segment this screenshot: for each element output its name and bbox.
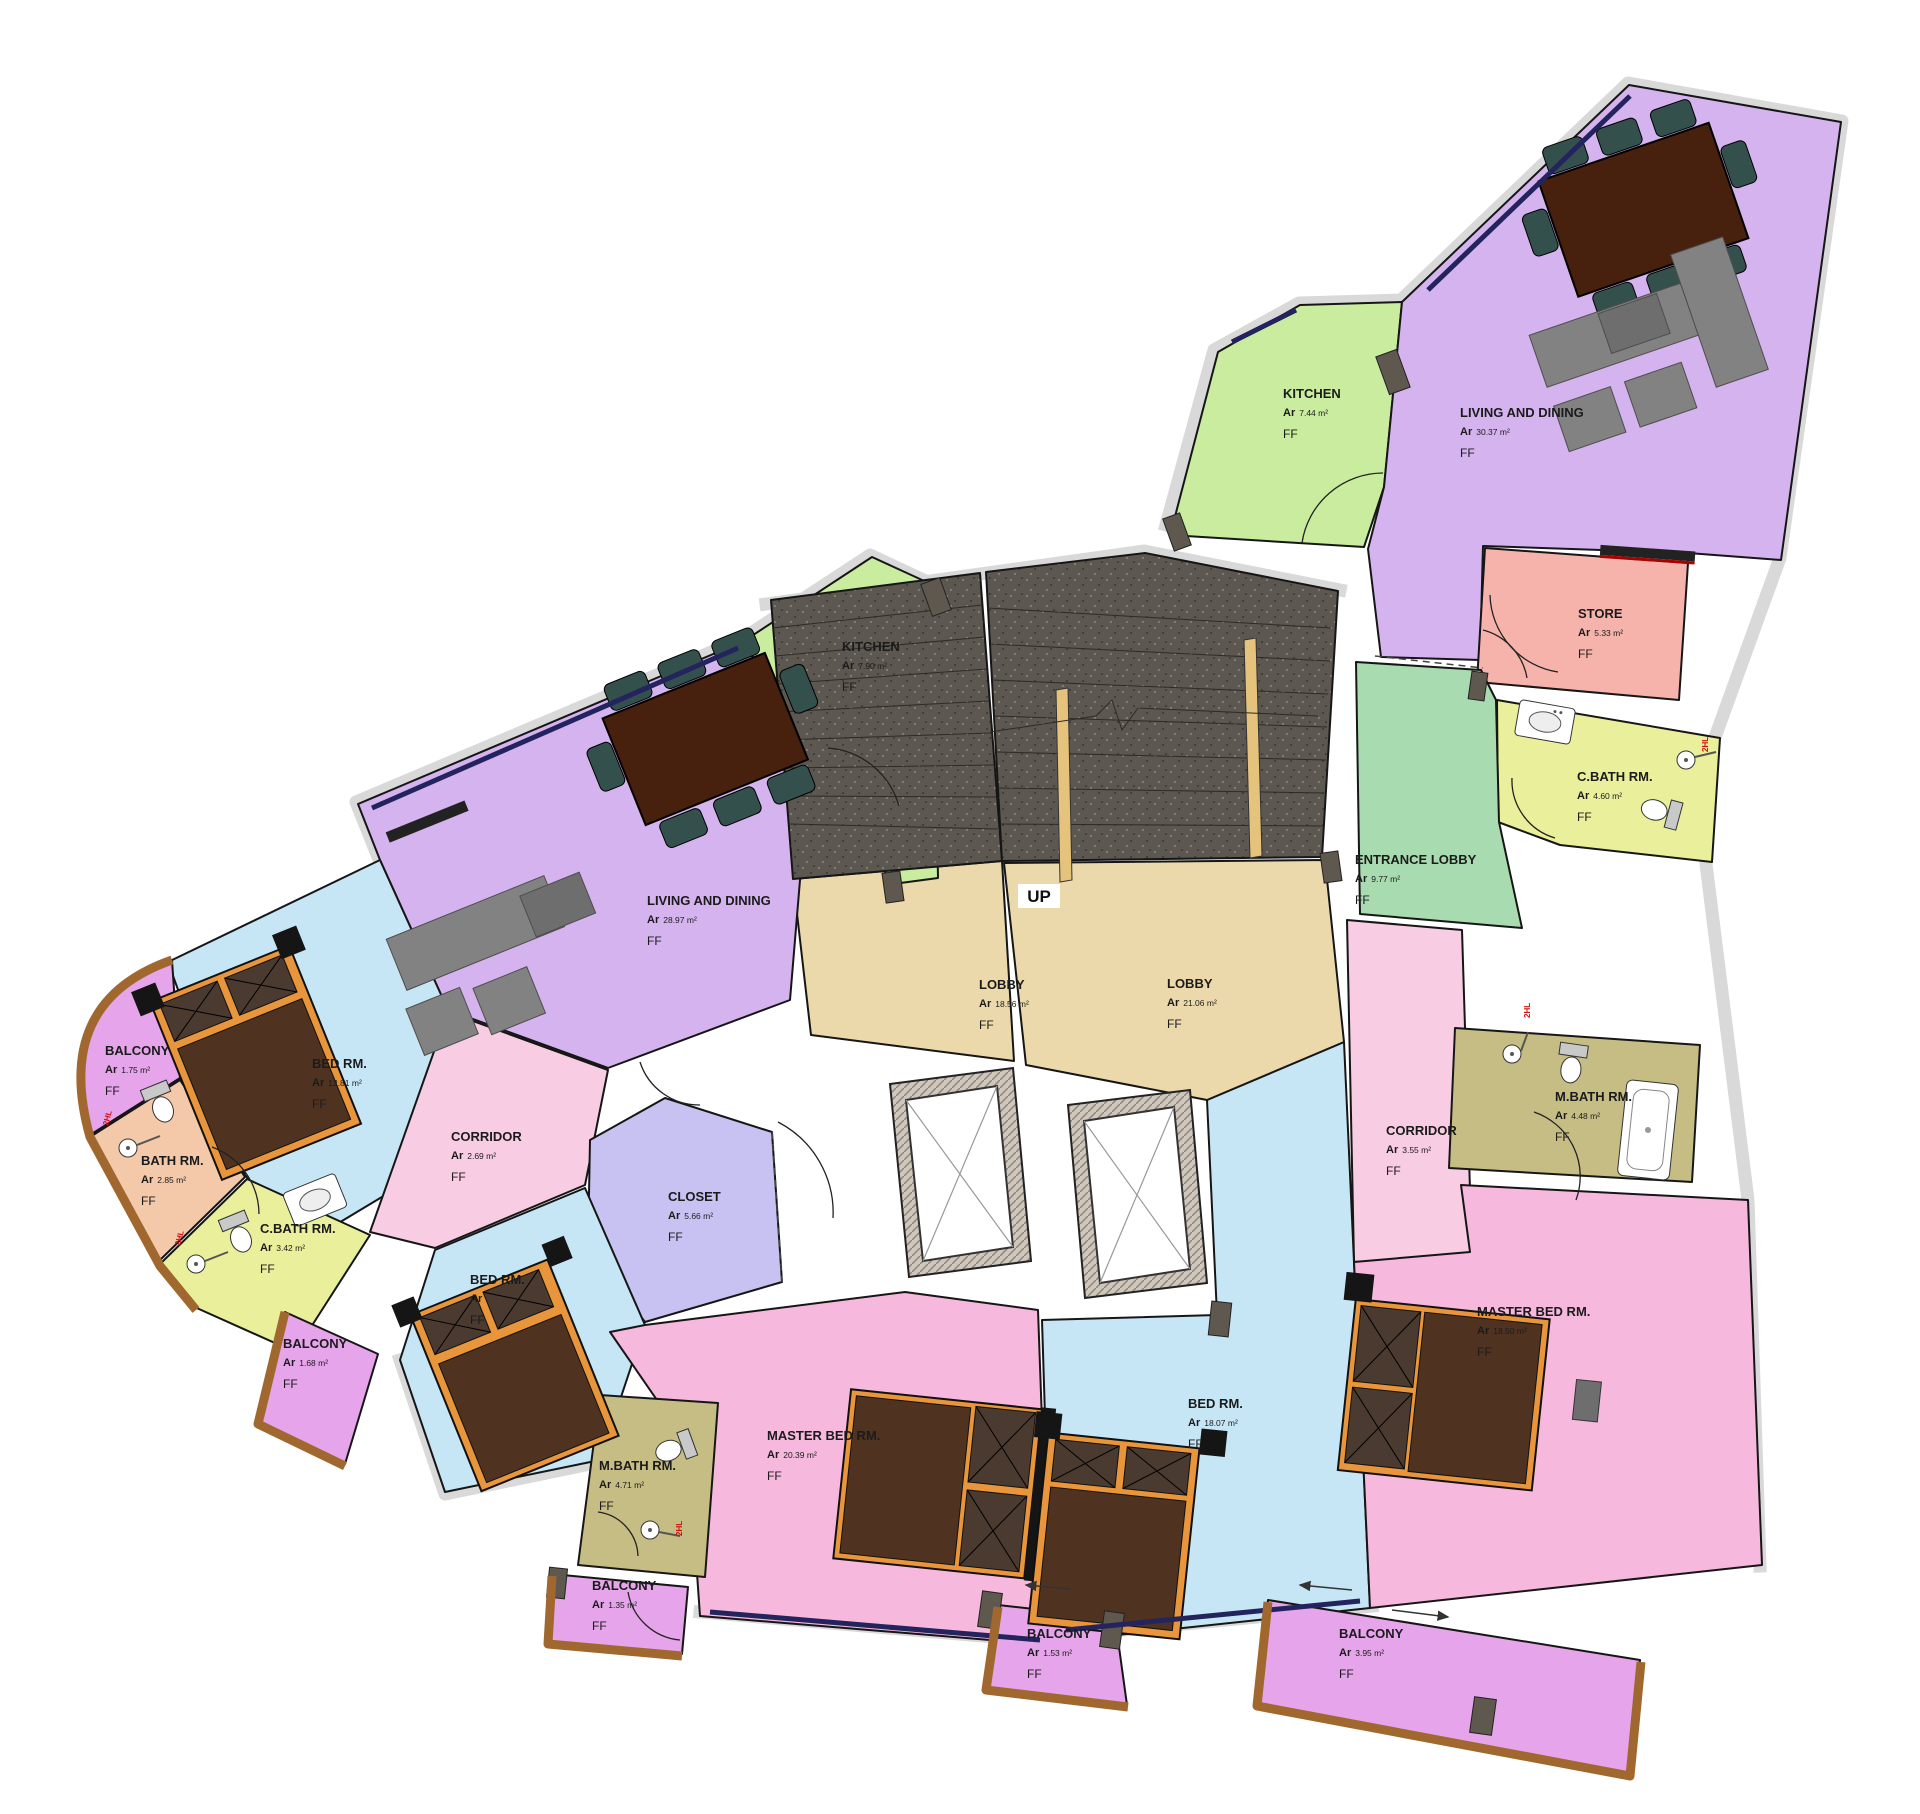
svg-text:Ar28.97 m²: Ar28.97 m² xyxy=(647,914,697,926)
svg-text:Ar3.95 m²: Ar3.95 m² xyxy=(1339,1647,1384,1659)
svg-text:BED RM.: BED RM. xyxy=(470,1272,525,1287)
svg-text:CORRIDOR: CORRIDOR xyxy=(1386,1123,1457,1138)
svg-text:BALCONY: BALCONY xyxy=(1027,1626,1092,1641)
svg-text:BALCONY: BALCONY xyxy=(592,1578,657,1593)
svg-text:BED RM.: BED RM. xyxy=(1188,1396,1243,1411)
svg-text:FF: FF xyxy=(451,1170,466,1184)
marker-mbath-left: 2HL xyxy=(675,1521,684,1536)
svg-text:FF: FF xyxy=(979,1018,994,1032)
svg-text:FF: FF xyxy=(470,1313,485,1327)
svg-text:C.BATH RM.: C.BATH RM. xyxy=(260,1221,336,1236)
svg-text:FF: FF xyxy=(1386,1164,1401,1178)
svg-text:M.BATH RM.: M.BATH RM. xyxy=(1555,1089,1632,1104)
svg-text:Ar18.07 m²: Ar18.07 m² xyxy=(1188,1417,1238,1429)
svg-text:M.BATH RM.: M.BATH RM. xyxy=(599,1458,676,1473)
svg-text:FF: FF xyxy=(283,1377,298,1391)
svg-text:LOBBY: LOBBY xyxy=(979,977,1025,992)
svg-text:FF: FF xyxy=(767,1469,782,1483)
svg-text:FF: FF xyxy=(1188,1437,1203,1451)
svg-text:Ar20.39 m²: Ar20.39 m² xyxy=(767,1449,817,1461)
svg-text:Ar3.55 m²: Ar3.55 m² xyxy=(1386,1144,1431,1156)
svg-text:FF: FF xyxy=(647,934,662,948)
svg-text:Ar5.33 m²: Ar5.33 m² xyxy=(1578,627,1623,639)
svg-text:FF: FF xyxy=(842,680,857,694)
svg-text:FF: FF xyxy=(668,1230,683,1244)
svg-text:FF: FF xyxy=(592,1619,607,1633)
svg-text:STORE: STORE xyxy=(1578,606,1623,621)
svg-text:FF: FF xyxy=(1027,1667,1042,1681)
ac-unit xyxy=(1572,1379,1601,1421)
svg-text:MASTER BED RM.: MASTER BED RM. xyxy=(767,1428,880,1443)
svg-text:FF: FF xyxy=(312,1097,327,1111)
svg-text:MASTER BED RM.: MASTER BED RM. xyxy=(1477,1304,1590,1319)
svg-text:Ar7.90 m²: Ar7.90 m² xyxy=(842,660,887,672)
svg-text:Ar30.37 m²: Ar30.37 m² xyxy=(1460,426,1510,438)
svg-text:Ar18.50 m²: Ar18.50 m² xyxy=(1477,1325,1527,1337)
svg-text:Ar1.75 m²: Ar1.75 m² xyxy=(105,1064,150,1076)
svg-text:Ar4.48 m²: Ar4.48 m² xyxy=(1555,1110,1600,1122)
svg-text:Ar21.06 m²: Ar21.06 m² xyxy=(1167,997,1217,1009)
svg-text:KITCHEN: KITCHEN xyxy=(1283,386,1341,401)
svg-text:LIVING AND DINING: LIVING AND DINING xyxy=(1460,405,1584,420)
svg-text:Ar18.56 m²: Ar18.56 m² xyxy=(979,998,1029,1010)
svg-text:BATH RM.: BATH RM. xyxy=(141,1153,204,1168)
room-store xyxy=(1477,548,1688,700)
svg-text:BALCONY: BALCONY xyxy=(105,1043,170,1058)
svg-text:FF: FF xyxy=(1477,1345,1492,1359)
stair-flight-left xyxy=(771,573,1002,879)
svg-text:FF: FF xyxy=(1460,446,1475,460)
svg-text:LOBBY: LOBBY xyxy=(1167,976,1213,991)
stair-flight-right xyxy=(986,553,1338,861)
svg-text:CORRIDOR: CORRIDOR xyxy=(451,1129,522,1144)
svg-text:Ar1.68 m²: Ar1.68 m² xyxy=(283,1357,328,1369)
svg-text:Ar5.66 m²: Ar5.66 m² xyxy=(668,1210,713,1222)
svg-text:BALCONY: BALCONY xyxy=(1339,1626,1404,1641)
svg-text:CLOSET: CLOSET xyxy=(668,1189,721,1204)
svg-text:Ar1.35 m²: Ar1.35 m² xyxy=(592,1599,637,1611)
svg-text:FF: FF xyxy=(105,1084,120,1098)
floor-plan: UP xyxy=(0,0,1920,1814)
svg-text:Ar7.44 m²: Ar7.44 m² xyxy=(1283,407,1328,419)
svg-text:FF: FF xyxy=(1555,1130,1570,1144)
svg-text:Ar4.71 m²: Ar4.71 m² xyxy=(599,1479,644,1491)
svg-text:Ar3.42 m²: Ar3.42 m² xyxy=(260,1242,305,1254)
svg-text:Ar: Ar xyxy=(470,1293,483,1305)
svg-text:FF: FF xyxy=(260,1262,275,1276)
svg-text:Ar2.69 m²: Ar2.69 m² xyxy=(451,1150,496,1162)
bed-master-center xyxy=(833,1387,1056,1582)
svg-text:FF: FF xyxy=(1283,427,1298,441)
svg-text:FF: FF xyxy=(599,1499,614,1513)
staircase: UP xyxy=(771,553,1338,908)
svg-text:FF: FF xyxy=(141,1194,156,1208)
svg-text:BED RM.: BED RM. xyxy=(312,1056,367,1071)
svg-text:BALCONY: BALCONY xyxy=(283,1336,348,1351)
svg-text:Ar1.53 m²: Ar1.53 m² xyxy=(1027,1647,1072,1659)
svg-text:ENTRANCE LOBBY: ENTRANCE LOBBY xyxy=(1355,852,1477,867)
marker-mbath-right: 2HL xyxy=(1523,1003,1532,1018)
svg-text:FF: FF xyxy=(1167,1017,1182,1031)
svg-text:C.BATH RM.: C.BATH RM. xyxy=(1577,769,1653,784)
svg-text:Ar2.85 m²: Ar2.85 m² xyxy=(141,1174,186,1186)
svg-text:FF: FF xyxy=(1577,810,1592,824)
svg-text:KITCHEN: KITCHEN xyxy=(842,639,900,654)
svg-text:FF: FF xyxy=(1355,893,1370,907)
svg-text:FF: FF xyxy=(1339,1667,1354,1681)
up-label: UP xyxy=(1027,887,1051,906)
svg-text:Ar4.60 m²: Ar4.60 m² xyxy=(1577,790,1622,802)
marker-cbath-right: 2HL xyxy=(1701,737,1710,752)
svg-text:Ar9.77 m²: Ar9.77 m² xyxy=(1355,873,1400,885)
svg-text:LIVING AND DINING: LIVING AND DINING xyxy=(647,893,771,908)
svg-text:FF: FF xyxy=(1578,647,1593,661)
svg-text:Ar12.81 m²: Ar12.81 m² xyxy=(312,1077,362,1089)
